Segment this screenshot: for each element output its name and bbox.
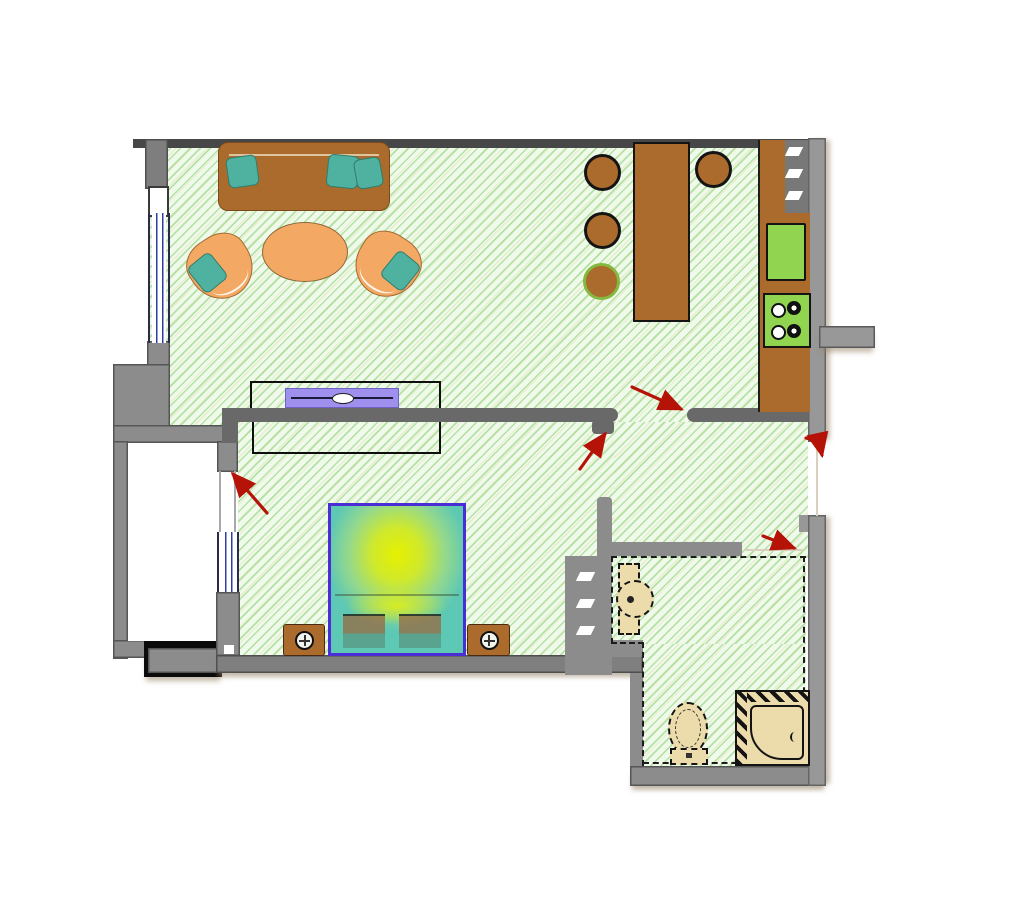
bathroom-boundary-left-upper xyxy=(611,556,613,644)
double-bed xyxy=(328,503,466,656)
hallway-floor xyxy=(614,422,808,558)
living-room-window xyxy=(148,213,170,343)
bar-stool xyxy=(584,154,621,191)
bar-stool xyxy=(584,212,621,249)
nightstand-left xyxy=(283,624,325,656)
blanket-fold-line xyxy=(335,594,459,596)
balcony-door-jamb-wall xyxy=(217,441,238,472)
apartment-floor-plan xyxy=(0,0,1024,904)
shower-handle xyxy=(790,732,799,742)
right-wall-upper xyxy=(808,138,826,442)
sofa-pillow xyxy=(353,156,385,190)
kitchen-counter-upper xyxy=(758,140,785,215)
divider-wall-connector xyxy=(222,408,238,443)
bathroom-boundary-step xyxy=(611,642,644,644)
coffee-table xyxy=(262,222,348,282)
bar-stool-green-ring xyxy=(583,263,620,300)
bed-pillow xyxy=(343,614,385,648)
shower-wall-hatch-left xyxy=(737,692,747,764)
balcony-door-jamb-line xyxy=(234,471,236,532)
toilet-tank-button xyxy=(686,753,692,758)
bathroom-boundary-left-lower xyxy=(642,642,644,766)
washbasin-drain xyxy=(627,596,634,603)
balcony-floor xyxy=(128,443,217,641)
bed-pillow xyxy=(399,614,441,648)
bathroom-bottom-wall xyxy=(630,766,826,786)
exterior-wall-stub xyxy=(819,326,875,348)
toilet-seat xyxy=(675,709,701,748)
nightstand-knob xyxy=(480,631,499,650)
washbasin xyxy=(616,580,654,618)
bedroom-door-jamb-block xyxy=(592,420,614,434)
burner-icon xyxy=(787,301,801,315)
bathroom-door-leaf xyxy=(744,549,802,551)
tv-on-stand xyxy=(285,388,399,408)
burner-icon xyxy=(787,324,801,338)
sofa-pillow xyxy=(225,154,260,189)
burner-icon xyxy=(771,303,786,318)
shower-wall-hatch-top xyxy=(737,692,808,702)
balcony-door-jamb-line xyxy=(219,471,221,532)
nightstand-right xyxy=(467,624,510,656)
tv-base-oval xyxy=(332,393,354,404)
entry-jamb-jut xyxy=(799,515,808,532)
bar-stool xyxy=(695,151,732,188)
bathroom-top-wall xyxy=(607,542,742,556)
toilet-tank xyxy=(670,748,708,765)
wall-notch xyxy=(224,645,234,654)
bedroom-window xyxy=(217,532,239,592)
right-wall-lower xyxy=(808,515,826,786)
left-pillar xyxy=(145,139,168,189)
stove xyxy=(763,293,811,348)
bar-table xyxy=(633,142,690,322)
balcony-step-block xyxy=(144,641,222,677)
burner-icon xyxy=(771,325,786,340)
shower-cabin xyxy=(735,690,810,766)
entry-door-leaf xyxy=(816,442,818,516)
living-bedroom-divider-wall xyxy=(222,408,618,422)
kitchen-sink xyxy=(766,223,806,281)
wardrobe-outline xyxy=(252,418,441,454)
nightstand-knob xyxy=(295,631,314,650)
balcony-left-wall xyxy=(113,441,128,659)
bathroom-boundary-top xyxy=(611,556,806,558)
